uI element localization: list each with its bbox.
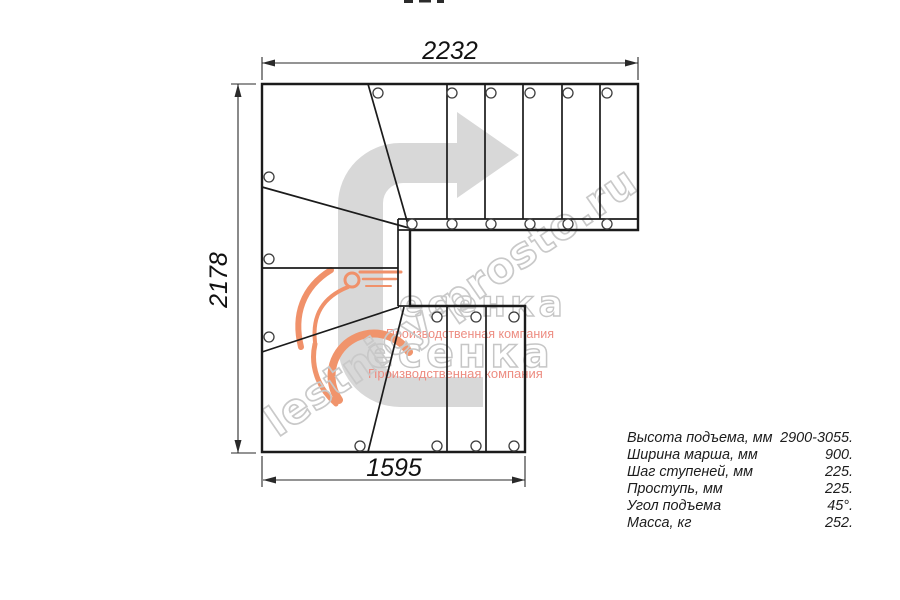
dim-left-label: 2178 [205, 252, 233, 309]
spec-row: Проступь, мм225. [627, 481, 853, 498]
spec-label: Масса, кг [627, 515, 691, 532]
spec-row: Угол подъема45°. [627, 498, 853, 515]
spec-label: Шаг ступеней, мм [627, 464, 753, 481]
spec-label: Угол подъема [627, 498, 721, 515]
spec-label: Ширина марша, мм [627, 447, 758, 464]
spec-value: 225. [825, 481, 853, 498]
spec-row: Шаг ступеней, мм225. [627, 464, 853, 481]
spec-label: Высота подъема, мм [627, 430, 772, 447]
dim-top-label: 2232 [421, 37, 478, 65]
drawing-canvas: есенка Производственная компания есенка … [0, 0, 900, 600]
spec-label: Проступь, мм [627, 481, 723, 498]
spec-value: 2900-3055. [780, 430, 853, 447]
dim-bottom-label: 1595 [366, 454, 422, 482]
dimension-left [231, 84, 256, 453]
spec-value: 45°. [827, 498, 853, 515]
specs-table: Высота подъема, мм2900-3055.Ширина марша… [627, 430, 853, 532]
top-crop-remnant [404, 0, 444, 3]
spec-value: 252. [825, 515, 853, 532]
spec-row: Масса, кг252. [627, 515, 853, 532]
spec-row: Высота подъема, мм2900-3055. [627, 430, 853, 447]
spec-row: Ширина марша, мм900. [627, 447, 853, 464]
spec-value: 225. [825, 464, 853, 481]
spec-value: 900. [825, 447, 853, 464]
